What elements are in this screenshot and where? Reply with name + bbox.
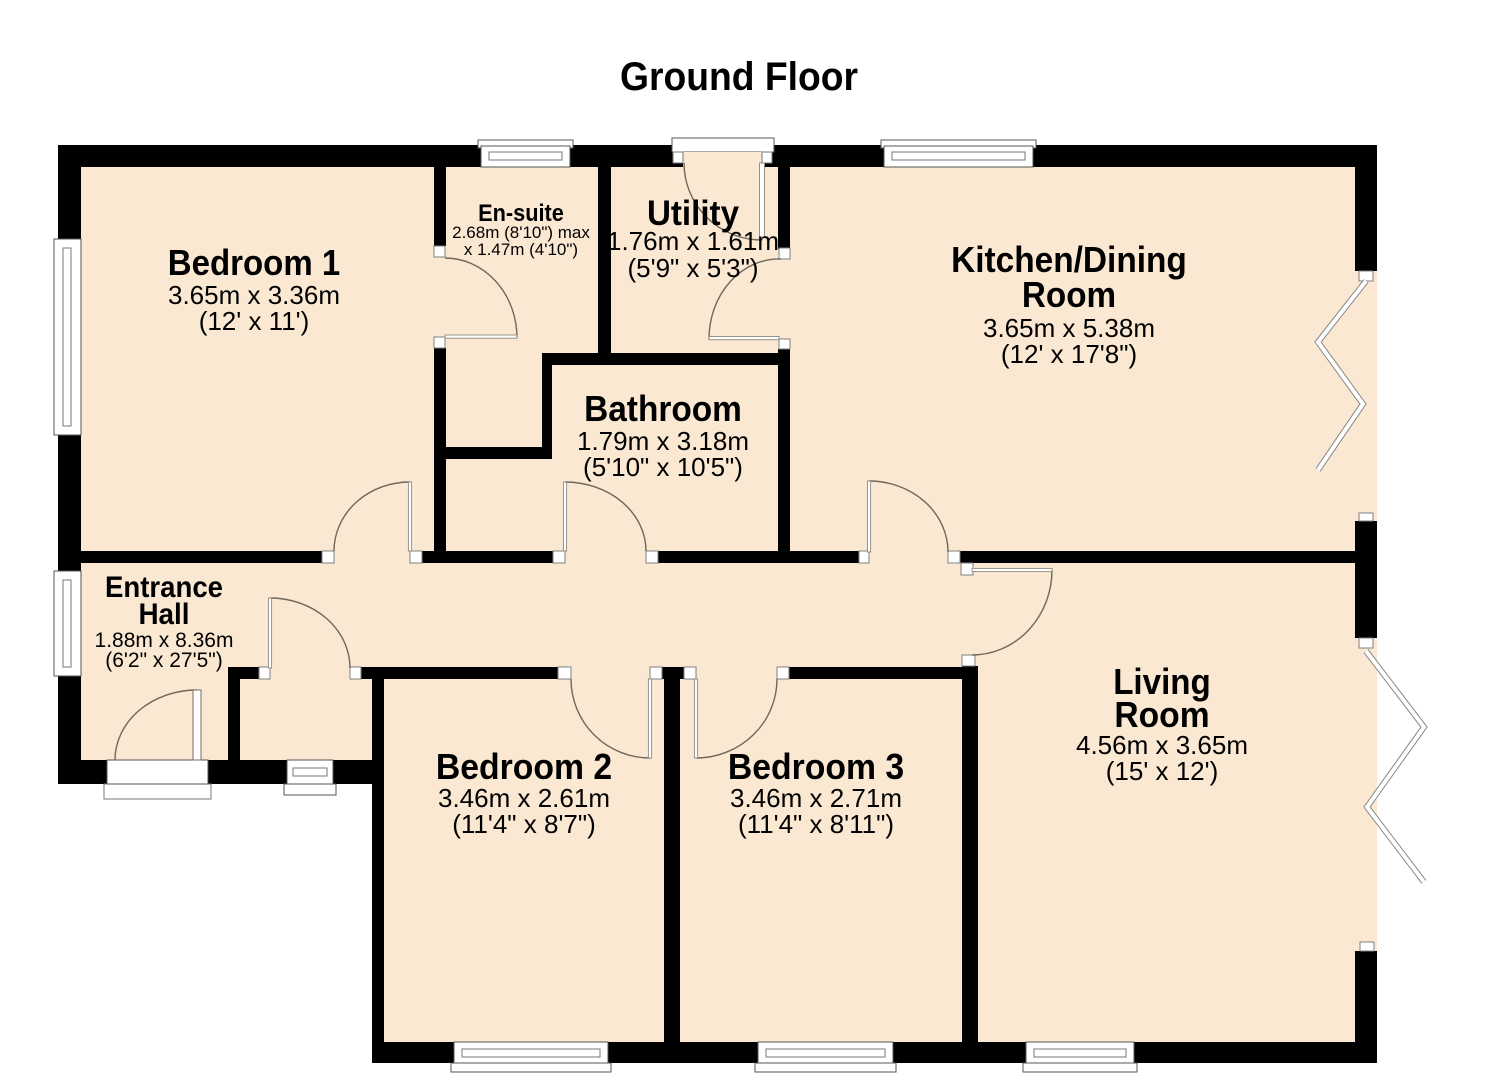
svg-text:Bedroom 2: Bedroom 2 [436, 746, 612, 787]
svg-text:Hall: Hall [138, 598, 189, 631]
svg-text:(12' x 17'8"): (12' x 17'8") [1001, 339, 1137, 369]
svg-text:(5'10" x 10'5"): (5'10" x 10'5") [583, 452, 743, 482]
svg-text:1.76m x 1.61m: 1.76m x 1.61m [607, 226, 779, 256]
svg-text:(6'2" x 27'5"): (6'2" x 27'5") [105, 649, 222, 672]
svg-text:Ground Floor: Ground Floor [620, 55, 858, 99]
svg-text:Room: Room [1022, 274, 1116, 315]
svg-text:(15' x 12'): (15' x 12') [1106, 756, 1219, 786]
svg-text:x 1.47m (4'10"): x 1.47m (4'10") [464, 240, 578, 259]
svg-text:(12' x 11'): (12' x 11') [199, 306, 310, 336]
svg-text:(11'4" x 8'11"): (11'4" x 8'11") [738, 809, 894, 839]
svg-text:Room: Room [1114, 694, 1209, 735]
svg-text:Bedroom 1: Bedroom 1 [168, 242, 341, 283]
svg-text:(5'9" x 5'3"): (5'9" x 5'3") [628, 253, 759, 283]
svg-text:Bathroom: Bathroom [584, 388, 742, 429]
svg-text:(11'4" x 8'7"): (11'4" x 8'7") [452, 809, 596, 839]
svg-text:Bedroom 3: Bedroom 3 [728, 746, 904, 787]
